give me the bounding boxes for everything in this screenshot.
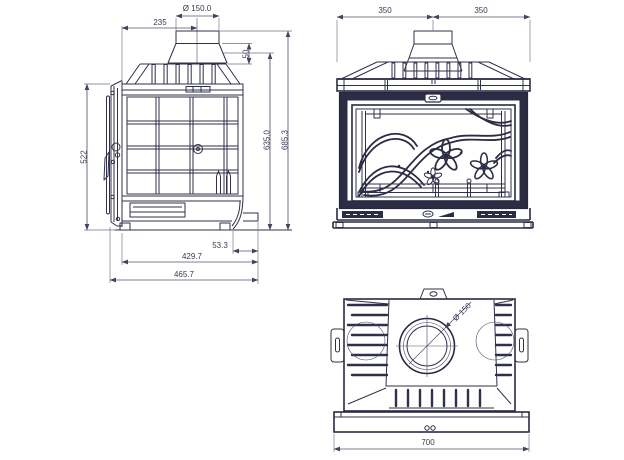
front-view-drawing: 350 350 bbox=[333, 6, 533, 228]
front-door-latch bbox=[425, 94, 441, 102]
top-flue-opening: Ø 150 bbox=[396, 301, 473, 377]
front-right-vent-grille bbox=[477, 211, 516, 218]
top-left-fins bbox=[347, 305, 387, 375]
dim-top-overall-width: 700 bbox=[421, 438, 435, 447]
dim-front-left-half: 350 bbox=[378, 6, 392, 15]
dim-side-door-height: 522 bbox=[80, 150, 89, 164]
side-door-handle bbox=[104, 81, 122, 227]
top-front-slats bbox=[389, 390, 494, 408]
dim-side-rear-offset: 53.3 bbox=[212, 241, 228, 250]
side-view-drawing: Ø 150.0 235 50 522 635.0 685.3 53.3 bbox=[80, 4, 293, 284]
side-flue-collar bbox=[168, 18, 227, 63]
front-dimensions: 350 350 bbox=[337, 6, 530, 62]
front-glass-decor bbox=[358, 109, 511, 197]
dim-side-flue-offset: 235 bbox=[153, 18, 167, 27]
dim-top-flue-diameter: Ø 150 bbox=[451, 301, 473, 323]
top-rear-bracket bbox=[420, 289, 447, 299]
dim-side-flue-diameter: Ø 150.0 bbox=[183, 4, 212, 13]
front-top-band bbox=[337, 79, 530, 91]
front-flue-collar bbox=[404, 31, 462, 71]
top-right-mounting-bracket bbox=[515, 329, 528, 362]
dim-side-body-height: 635.0 bbox=[263, 129, 272, 150]
side-ash-drawer-base bbox=[115, 196, 292, 230]
top-dimensions: 700 bbox=[334, 434, 529, 452]
dim-front-right-half: 350 bbox=[474, 6, 488, 15]
front-base bbox=[333, 222, 533, 228]
top-front-frame bbox=[334, 412, 529, 432]
flower-motif-small bbox=[424, 168, 443, 186]
side-top-band bbox=[122, 84, 243, 95]
flower-motif-medium bbox=[470, 153, 499, 180]
top-view-drawing: Ø 150 700 bbox=[331, 289, 529, 452]
dim-side-overall-depth: 465.7 bbox=[174, 270, 195, 279]
front-air-control-lever bbox=[423, 211, 454, 217]
dim-side-body-depth: 429.7 bbox=[182, 252, 203, 261]
side-heat-fins bbox=[126, 64, 240, 84]
front-left-vent-grille bbox=[342, 211, 383, 218]
top-left-mounting-bracket bbox=[331, 329, 344, 362]
technical-drawing-page: Ø 150.0 235 50 522 635.0 685.3 53.3 bbox=[0, 0, 624, 460]
fireplace-technical-drawing: Ø 150.0 235 50 522 635.0 685.3 53.3 bbox=[0, 0, 624, 460]
front-bottom-panel bbox=[333, 208, 533, 228]
dim-side-overall-height: 685.3 bbox=[281, 129, 290, 150]
dim-side-collar-height: 50 bbox=[242, 49, 251, 58]
